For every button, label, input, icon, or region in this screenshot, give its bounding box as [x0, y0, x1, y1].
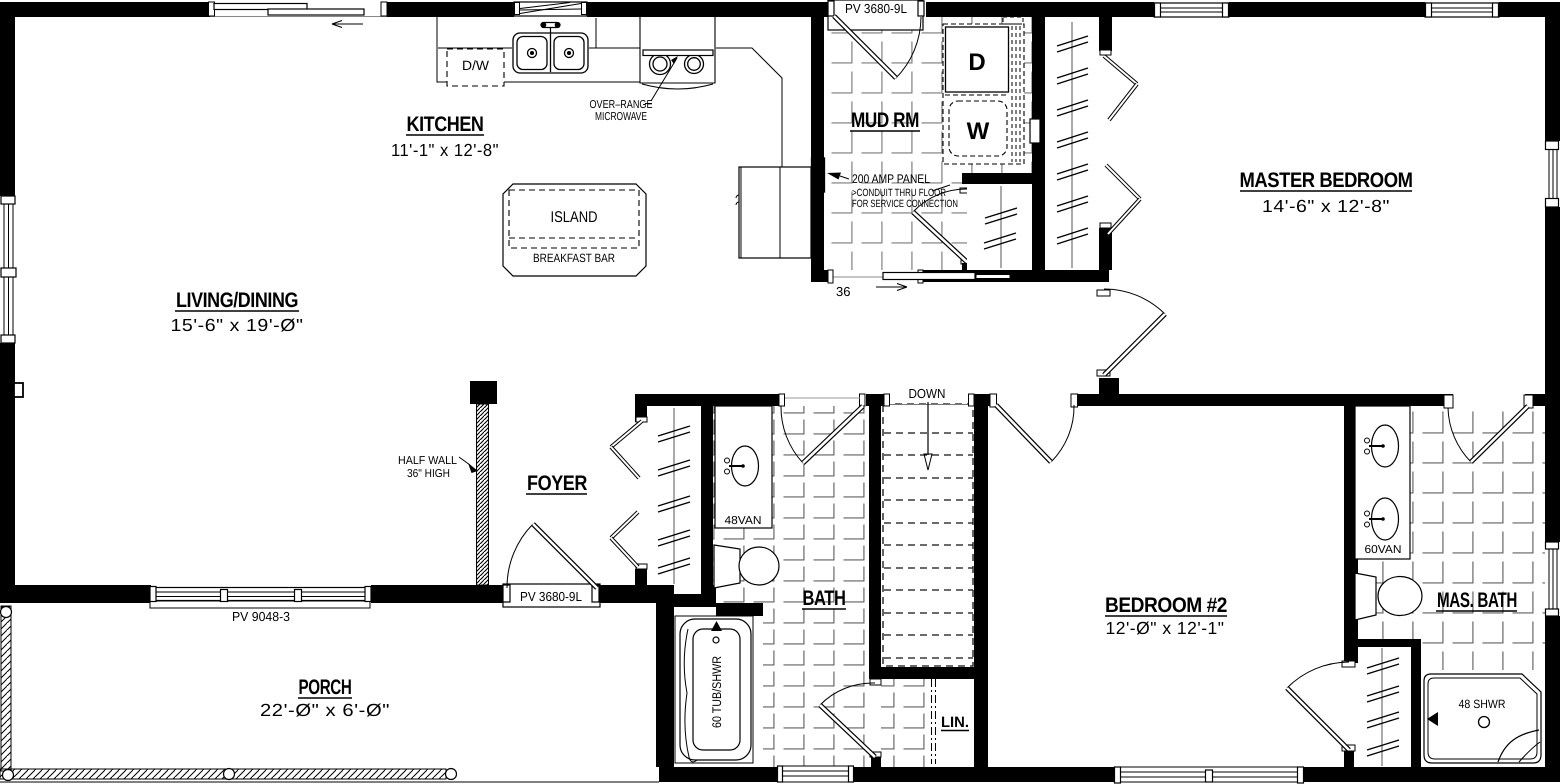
svg-text:LIN.: LIN. — [941, 714, 969, 731]
svg-text:PV 3680-9L: PV 3680-9L — [845, 1, 907, 16]
svg-text:D/W: D/W — [462, 58, 489, 73]
svg-text:FOR SERVICE CONNECTION: FOR SERVICE CONNECTION — [852, 198, 958, 210]
svg-text:200 AMP PANEL: 200 AMP PANEL — [852, 172, 930, 186]
svg-text:15'-6" x 19'-Ø": 15'-6" x 19'-Ø" — [171, 315, 304, 335]
svg-text:60 TUB/SHWR: 60 TUB/SHWR — [710, 656, 724, 728]
svg-text:48VAN: 48VAN — [725, 515, 762, 527]
svg-text:ISLAND: ISLAND — [551, 209, 598, 226]
svg-text:MICROWAVE: MICROWAVE — [595, 111, 647, 123]
svg-text:MUD RM: MUD RM — [851, 109, 919, 132]
svg-text:36" HIGH: 36" HIGH — [407, 468, 450, 480]
svg-text:FOYER: FOYER — [527, 472, 587, 495]
svg-text:48 SHWR: 48 SHWR — [1459, 697, 1506, 711]
svg-text:OVER–RANGE: OVER–RANGE — [590, 99, 653, 111]
svg-text:D: D — [968, 49, 985, 76]
svg-text:HALF WALL: HALF WALL — [398, 455, 458, 467]
svg-text:12'-Ø" x 12'-1": 12'-Ø" x 12'-1" — [1106, 618, 1225, 638]
svg-text:BATH: BATH — [803, 587, 846, 610]
svg-text:PV 3680-9L: PV 3680-9L — [520, 589, 582, 604]
svg-text:PV 9048-3: PV 9048-3 — [232, 609, 290, 624]
svg-text:MASTER BEDROOM: MASTER BEDROOM — [1240, 169, 1413, 192]
svg-text:BEDROOM #2: BEDROOM #2 — [1105, 594, 1227, 617]
svg-text:PORCH: PORCH — [299, 676, 352, 699]
svg-text:BREAKFAST BAR: BREAKFAST BAR — [533, 251, 615, 265]
svg-text:11'-1" x 12'-8": 11'-1" x 12'-8" — [391, 140, 499, 160]
svg-text:MAS. BATH: MAS. BATH — [1437, 589, 1517, 612]
svg-text:LIVING/DINING: LIVING/DINING — [176, 289, 298, 312]
svg-text:36: 36 — [836, 284, 850, 299]
svg-text:W: W — [967, 118, 990, 145]
svg-text:22'-Ø" x 6'-Ø": 22'-Ø" x 6'-Ø" — [260, 700, 390, 720]
svg-text:60VAN: 60VAN — [1365, 544, 1402, 556]
svg-text:14'-6" x 12'-8": 14'-6" x 12'-8" — [1262, 196, 1390, 216]
svg-text:DOWN: DOWN — [909, 386, 946, 401]
svg-text:KITCHEN: KITCHEN — [407, 113, 484, 136]
